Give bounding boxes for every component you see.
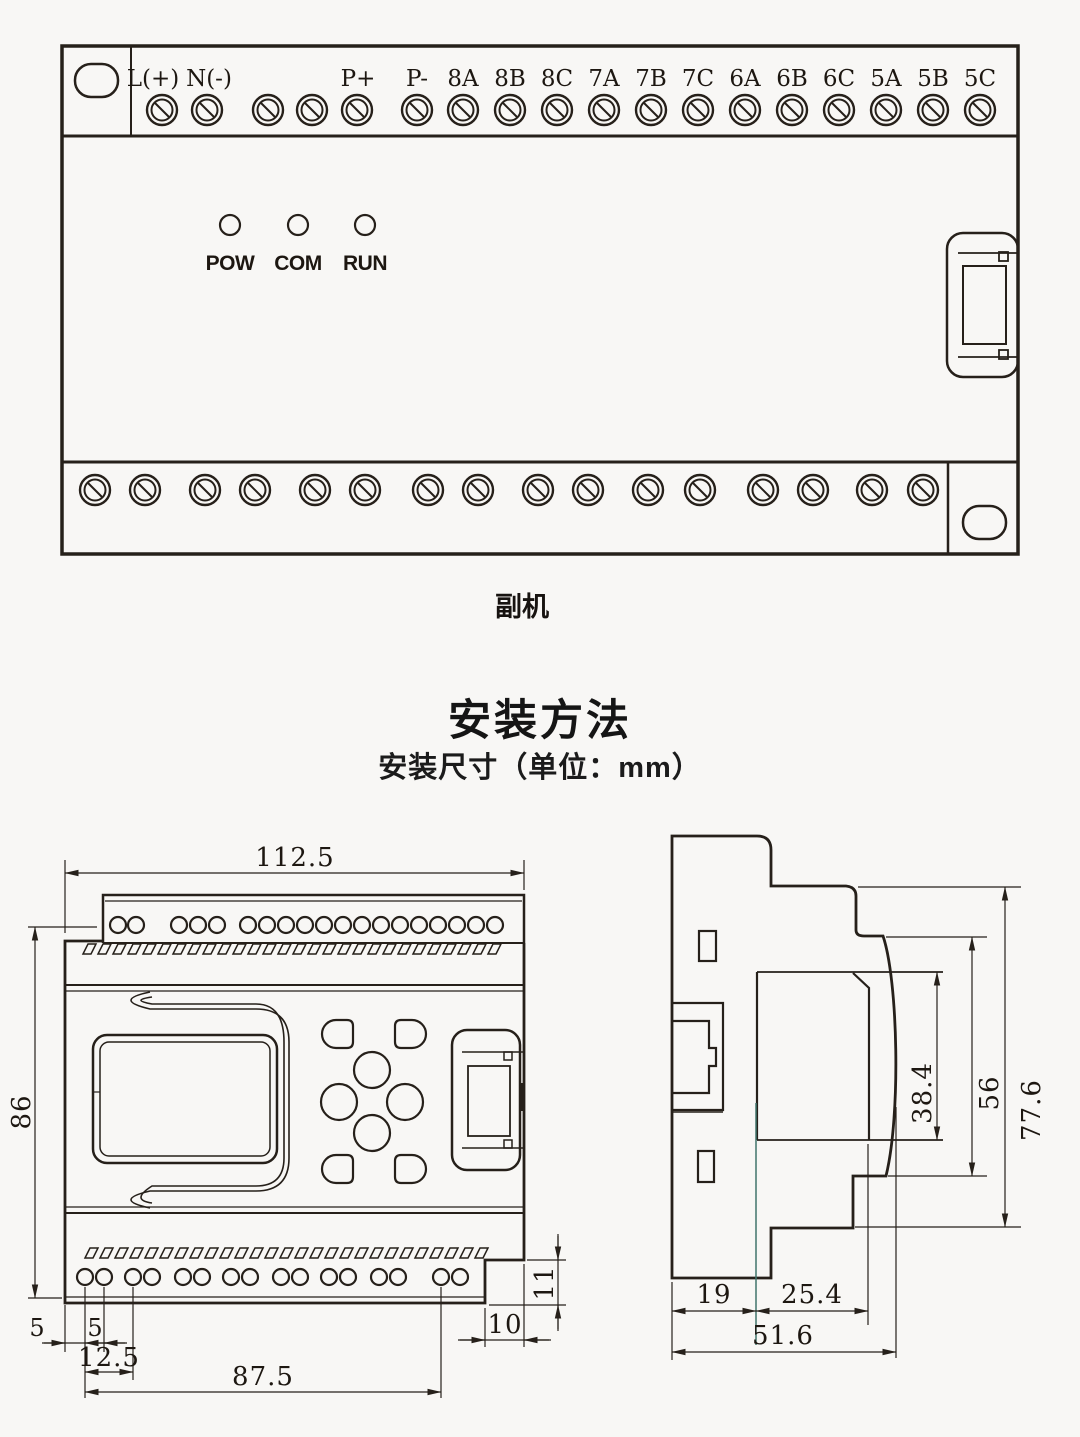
top-terminal-screws (147, 95, 995, 125)
screw-terminal-icon (297, 95, 327, 125)
terminal-hole (390, 1269, 406, 1285)
terminal-label: 7B (635, 66, 667, 92)
terminal-label: N(-) (186, 66, 232, 92)
device-outline (62, 46, 1018, 554)
side-dimension-labels: 38.4 56 77.6 19 25.4 51.6 (696, 1062, 1047, 1351)
pow-label: POW (206, 252, 255, 275)
side-hole-bottom (698, 1151, 714, 1182)
terminal-hole (373, 917, 389, 933)
side-hole-top (699, 931, 716, 961)
screw-terminal-icon (685, 475, 715, 505)
terminal-hole (273, 1269, 289, 1285)
serration-teeth (85, 1248, 488, 1258)
expansion-connector (947, 233, 1018, 377)
screw-terminal-icon (523, 475, 553, 505)
device-caption: 副机 (0, 585, 1044, 624)
mount-slot-top (75, 64, 118, 97)
page: L(+) N(-) P+ P- 8A 8B 8C 7A 7B 7C 6A 6B … (0, 0, 1080, 1437)
panel-groove (131, 992, 289, 1208)
key-top-left (322, 1020, 353, 1048)
key-up (354, 1052, 390, 1088)
key-top-right (395, 1020, 426, 1048)
terminal-hole (209, 917, 225, 933)
bottom-terminal-screws (80, 475, 938, 505)
screw-terminal-icon (240, 475, 270, 505)
front-top-terminal-holes (110, 917, 503, 933)
device-top-view (62, 46, 1018, 554)
terminal-hole (128, 917, 144, 933)
keypad (321, 1020, 426, 1183)
terminal-label: 5C (964, 66, 996, 92)
side-profile-outline (672, 836, 896, 1278)
terminal-label: 5A (870, 66, 902, 92)
screw-terminal-icon (342, 95, 372, 125)
terminal-label: 6C (823, 66, 855, 92)
screw-terminal-icon (253, 95, 283, 125)
dim-clip-depth: 19 (696, 1280, 731, 1310)
terminal-label: 8B (494, 66, 526, 92)
terminal-hole (449, 917, 465, 933)
screw-terminal-icon (918, 95, 948, 125)
terminal-hole (468, 917, 484, 933)
terminal-hole (194, 1269, 210, 1285)
dim-notch-width: 10 (487, 1310, 522, 1340)
dim-first-pitch: 12.5 (78, 1343, 140, 1373)
dim-total-depth: 51.6 (752, 1321, 814, 1351)
terminal-label: 7A (588, 66, 620, 92)
dim-hole-gap: 5 (87, 1314, 102, 1342)
dim-face-height: 56 (975, 1075, 1005, 1110)
terminal-label: 5B (917, 66, 949, 92)
screw-terminal-icon (190, 475, 220, 505)
dim-hole-span: 87.5 (232, 1362, 294, 1392)
terminal-hole (242, 1269, 258, 1285)
screw-terminal-icon (636, 95, 666, 125)
screw-terminal-icon (798, 475, 828, 505)
key-bottom-left (322, 1155, 353, 1183)
screw-terminal-icon (300, 475, 330, 505)
front-connector (452, 1030, 525, 1170)
terminal-hole (278, 917, 294, 933)
screw-terminal-icon (413, 475, 443, 505)
front-view-drawing (28, 860, 566, 1398)
screw-terminal-icon (402, 95, 432, 125)
status-leds (220, 215, 375, 235)
front-bottom-terminal-holes (77, 1269, 468, 1285)
pow-led-icon (220, 215, 240, 235)
screw-terminal-icon (824, 95, 854, 125)
screw-terminal-icon (448, 95, 478, 125)
com-led-icon (288, 215, 308, 235)
dim-recess-height: 38.4 (908, 1062, 938, 1124)
dim-total-height: 77.6 (1017, 1079, 1047, 1141)
install-title: 安装方法 (0, 686, 1080, 748)
din-rail-clip (672, 1003, 723, 1112)
screw-terminal-icon (730, 95, 760, 125)
screw-terminal-icon (130, 475, 160, 505)
terminal-label: 6B (776, 66, 808, 92)
vent-serration-bottom (85, 1248, 488, 1258)
terminal-hole (175, 1269, 191, 1285)
screw-terminal-icon (80, 475, 110, 505)
screw-terminal-icon (463, 475, 493, 505)
dim-notch-height: 11 (530, 1265, 560, 1300)
terminal-hole (316, 917, 332, 933)
terminal-hole (171, 917, 187, 933)
terminal-hole (110, 917, 126, 933)
screw-terminal-icon (633, 475, 663, 505)
terminal-hole (354, 917, 370, 933)
terminal-hole (430, 917, 446, 933)
screw-terminal-icon (192, 95, 222, 125)
terminal-hole (125, 1269, 141, 1285)
terminal-hole (321, 1269, 337, 1285)
screw-terminal-icon (350, 475, 380, 505)
display-window (93, 1035, 277, 1163)
terminal-label: 6A (729, 66, 761, 92)
terminal-label: 7C (682, 66, 714, 92)
run-label: RUN (343, 252, 387, 275)
screw-terminal-icon (777, 95, 807, 125)
led-labels: POW COM RUN (206, 252, 387, 275)
terminal-hole (259, 917, 275, 933)
terminal-hole (240, 917, 256, 933)
terminal-hole (487, 917, 503, 933)
vent-serration-top (83, 944, 501, 954)
screw-terminal-icon (495, 95, 525, 125)
key-bottom-right (395, 1155, 426, 1183)
screw-terminal-icon (589, 95, 619, 125)
terminal-hole (190, 917, 206, 933)
terminal-hole (223, 1269, 239, 1285)
front-dimension-lines (28, 860, 566, 1398)
dim-recess-depth: 25.4 (781, 1280, 843, 1310)
key-left (321, 1084, 357, 1120)
terminal-hole (144, 1269, 160, 1285)
install-subtitle: 安装尺寸（单位：mm） (0, 744, 1080, 786)
terminal-hole (392, 917, 408, 933)
com-label: COM (274, 252, 322, 275)
key-right (387, 1084, 423, 1120)
terminal-label: L(+) (127, 66, 180, 92)
terminal-hole (297, 917, 313, 933)
terminal-label: 8A (447, 66, 479, 92)
terminal-hole (77, 1269, 93, 1285)
terminal-hole (452, 1269, 468, 1285)
mount-slot-bottom (963, 506, 1006, 539)
terminal-hole (411, 917, 427, 933)
screw-terminal-icon (683, 95, 713, 125)
dim-width: 112.5 (255, 843, 334, 873)
screw-terminal-icon (147, 95, 177, 125)
terminal-hole (371, 1269, 387, 1285)
dim-left-gap: 5 (29, 1314, 44, 1342)
screw-terminal-icon (857, 475, 887, 505)
terminal-label: P- (406, 66, 428, 92)
terminal-hole (335, 917, 351, 933)
screw-terminal-icon (871, 95, 901, 125)
terminal-hole (96, 1269, 112, 1285)
serration-teeth (83, 944, 501, 954)
terminal-labels: L(+) N(-) P+ P- 8A 8B 8C 7A 7B 7C 6A 6B … (127, 66, 996, 92)
terminal-hole (433, 1269, 449, 1285)
dim-height: 86 (7, 1094, 37, 1129)
terminal-hole (292, 1269, 308, 1285)
run-led-icon (355, 215, 375, 235)
screw-terminal-icon (542, 95, 572, 125)
screw-terminal-icon (908, 475, 938, 505)
terminal-label: P+ (341, 66, 376, 92)
key-down (354, 1115, 390, 1151)
terminal-label: 8C (541, 66, 573, 92)
screw-terminal-icon (965, 95, 995, 125)
terminal-hole (340, 1269, 356, 1285)
screw-terminal-icon (748, 475, 778, 505)
screw-terminal-icon (573, 475, 603, 505)
